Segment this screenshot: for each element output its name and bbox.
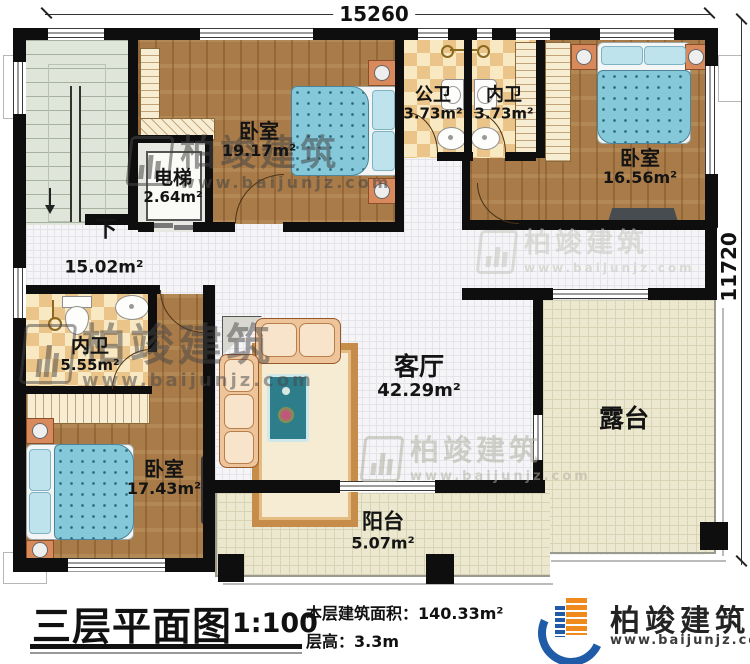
room-label-elevator: 电梯 2.64m² xyxy=(143,168,202,206)
wardrobe xyxy=(545,42,571,162)
wall xyxy=(462,288,553,300)
nightstand xyxy=(368,60,396,86)
window xyxy=(200,28,313,40)
room-name: 阳台 xyxy=(351,510,414,534)
elevator-door xyxy=(154,223,173,228)
nightstand xyxy=(685,44,707,70)
room-name: 公卫 xyxy=(403,86,462,106)
wall xyxy=(435,480,545,493)
wall xyxy=(533,300,543,415)
room-label-living: 客厅 42.29m² xyxy=(377,353,461,401)
stair-handrail xyxy=(70,86,81,222)
lamp-icon xyxy=(374,183,390,199)
logo-building-blue xyxy=(555,606,565,637)
pillow xyxy=(372,90,395,130)
window xyxy=(705,66,718,174)
floor-plan-canvas: 柏竣建筑 www.baijunjz.com 柏竣建筑 www.baijunjz.… xyxy=(0,0,750,664)
coffee-table xyxy=(267,374,309,442)
room-label-ensuite-left: 内卫 5.55m² xyxy=(60,336,119,374)
stairs-down-text: 下 xyxy=(95,219,117,244)
room-name: 内卫 xyxy=(474,86,533,106)
title-underline-thick xyxy=(30,644,302,649)
wall xyxy=(462,220,718,230)
window xyxy=(533,415,543,460)
room-name: 客厅 xyxy=(377,353,461,381)
window xyxy=(477,28,492,40)
table-decor xyxy=(282,387,290,395)
bed-blanket xyxy=(54,444,134,540)
column xyxy=(218,554,244,582)
dimension-tick xyxy=(703,7,715,19)
stair-down-arrow xyxy=(45,205,55,214)
brand-website: www.baijunjz.com xyxy=(610,633,750,648)
wall xyxy=(193,222,235,232)
sofa-cushion xyxy=(224,359,254,392)
window xyxy=(13,268,26,318)
pillow xyxy=(372,131,395,171)
room-area: 16.56m² xyxy=(603,169,677,187)
lamp-icon xyxy=(374,65,390,81)
window xyxy=(418,28,448,40)
dimension-line-right xyxy=(741,20,742,565)
floor-area-text: 本层建筑面积：140.33m² xyxy=(306,600,503,624)
room-label-ensuite-top: 内卫 3.73m² xyxy=(474,86,533,123)
window xyxy=(600,28,674,40)
room-area: 3.73m² xyxy=(474,106,533,123)
dimension-width: 15260 xyxy=(333,2,415,26)
faucet-icon xyxy=(477,45,490,58)
wall xyxy=(464,28,472,158)
terrace-railing-line xyxy=(551,560,726,562)
nightstand xyxy=(26,418,54,444)
elevator-door xyxy=(174,225,193,230)
label-hallway-area: 15.02m² xyxy=(65,258,144,277)
window xyxy=(13,62,26,114)
pillow xyxy=(601,46,643,65)
lamp-icon xyxy=(688,49,704,65)
window xyxy=(516,28,550,40)
room-name: 内卫 xyxy=(60,336,119,357)
balcony-railing-line xyxy=(223,583,553,585)
room-label-bedroom-bottom: 卧室 17.43m² xyxy=(127,458,201,498)
wall xyxy=(215,480,340,493)
dimension-tick xyxy=(40,7,52,19)
sink xyxy=(437,127,466,150)
room-name: 卧室 xyxy=(222,120,296,142)
wall xyxy=(13,285,160,294)
wall xyxy=(138,135,213,143)
title-underline-thin xyxy=(30,652,302,654)
sofa-left xyxy=(219,354,259,468)
exterior-ledge xyxy=(718,55,742,102)
nightstand xyxy=(571,44,597,70)
room-area: 2.64m² xyxy=(143,189,202,206)
sliding-door xyxy=(340,481,435,492)
stair-direction-line xyxy=(49,188,51,206)
shower-icon xyxy=(48,317,62,331)
wall xyxy=(648,288,718,300)
room-area: 17.43m² xyxy=(127,480,201,498)
wall xyxy=(138,222,154,232)
room-label-terrace: 露台 xyxy=(599,405,649,433)
bed-blanket xyxy=(291,86,369,176)
lamp-icon xyxy=(32,542,48,558)
room-area: 15.02m² xyxy=(65,258,144,277)
shower-icon xyxy=(52,300,54,318)
logo-building-orange xyxy=(566,598,587,635)
faucet-icon xyxy=(441,45,454,58)
pillow xyxy=(29,449,51,491)
lamp-icon xyxy=(32,423,48,439)
room-name: 卧室 xyxy=(603,147,677,169)
bed-blanket xyxy=(597,70,691,144)
terrace-railing-line xyxy=(722,308,724,556)
floor-height-text: 层高：3.3m xyxy=(306,628,399,652)
label-stairs-down: 下 xyxy=(95,219,117,244)
room-area: 5.55m² xyxy=(60,357,119,374)
room-name: 电梯 xyxy=(143,168,202,189)
brand-logo-icon xyxy=(538,596,602,654)
room-label-bedroom-right: 卧室 16.56m² xyxy=(603,147,677,187)
room-label-balcony: 阳台 5.07m² xyxy=(351,510,414,551)
dimension-height: 11720 xyxy=(717,228,741,306)
room-area: 42.29m² xyxy=(377,381,461,401)
table-flowers xyxy=(278,407,294,423)
sink xyxy=(115,295,149,320)
sofa-cushion xyxy=(261,323,297,357)
room-name: 卧室 xyxy=(127,458,201,480)
room-label-public-bath: 公卫 3.73m² xyxy=(403,86,462,123)
pillow xyxy=(29,492,51,534)
column xyxy=(700,522,728,550)
wall xyxy=(205,135,213,230)
pillow xyxy=(644,46,686,65)
wall xyxy=(395,28,404,232)
nightstand xyxy=(368,178,396,204)
nightstand xyxy=(26,540,54,559)
room-area: 3.73m² xyxy=(403,106,462,123)
wall xyxy=(505,152,536,161)
window xyxy=(553,289,648,299)
room-area: 19.17m² xyxy=(222,142,296,160)
column xyxy=(426,554,454,584)
wall xyxy=(128,40,138,230)
sofa-top xyxy=(255,318,341,364)
wardrobe xyxy=(140,48,160,120)
room-area: 5.07m² xyxy=(351,534,414,552)
wall xyxy=(283,222,404,232)
lamp-icon xyxy=(576,49,592,65)
wall xyxy=(203,285,215,558)
sofa-cushion xyxy=(224,431,254,464)
sofa-cushion xyxy=(224,394,254,429)
window xyxy=(68,558,165,572)
window xyxy=(48,28,104,40)
room-label-bedroom-top: 卧室 19.17m² xyxy=(222,120,296,160)
sofa-cushion xyxy=(299,323,335,357)
wall xyxy=(536,28,545,158)
wall xyxy=(148,294,157,352)
room-name: 露台 xyxy=(599,405,649,433)
